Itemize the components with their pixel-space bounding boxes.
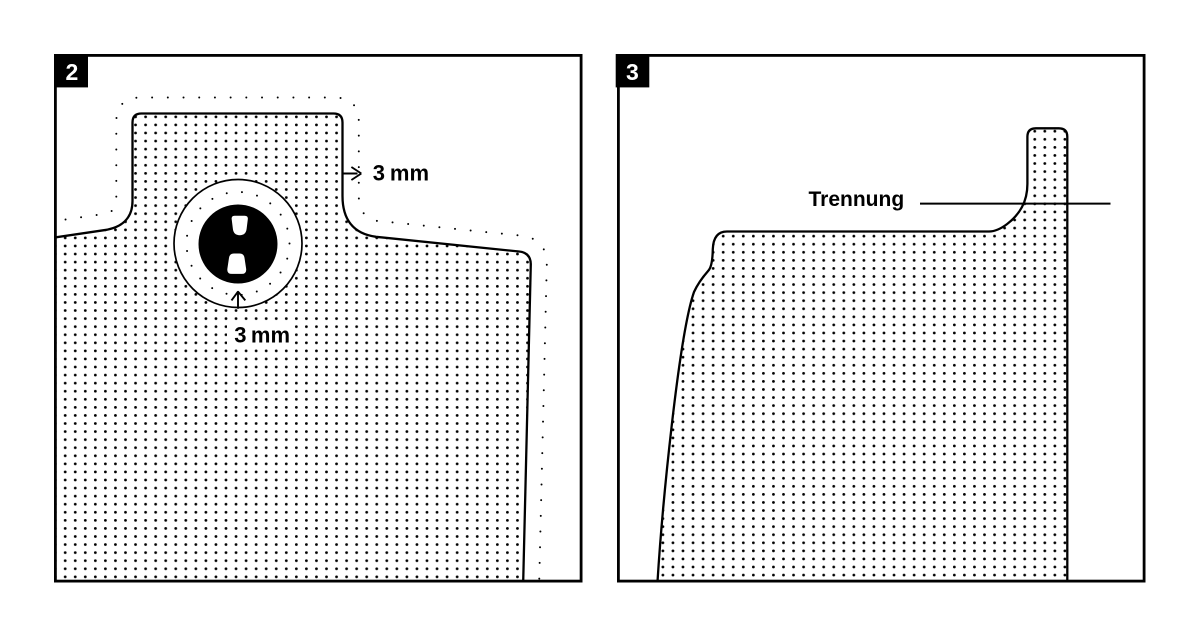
svg-text:3: 3: [234, 322, 246, 347]
svg-text:mm: mm: [390, 161, 429, 186]
svg-text:mm: mm: [251, 322, 290, 347]
svg-text:3: 3: [626, 59, 639, 85]
svg-text:2: 2: [66, 59, 79, 85]
svg-text:3: 3: [373, 161, 385, 186]
svg-text:Trennung: Trennung: [809, 188, 905, 211]
